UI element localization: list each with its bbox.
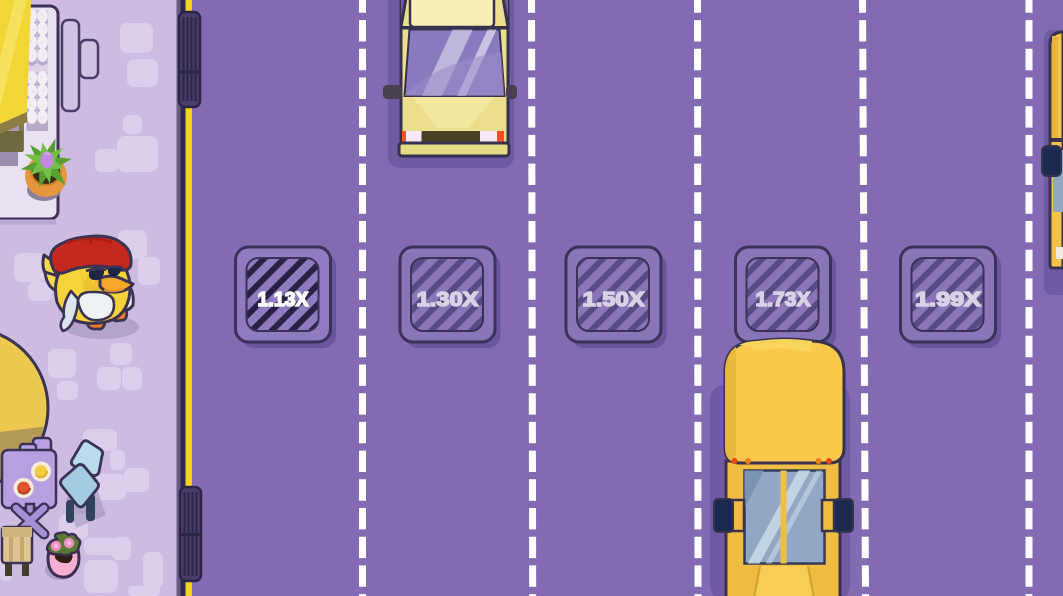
svg-text:1.50X: 1.50X [583, 289, 646, 311]
svg-text:1.73X: 1.73X [756, 289, 812, 311]
svg-text:1.13X: 1.13X [258, 289, 310, 311]
svg-text:1.99X: 1.99X [915, 289, 982, 311]
svg-text:1.30X: 1.30X [417, 289, 480, 311]
